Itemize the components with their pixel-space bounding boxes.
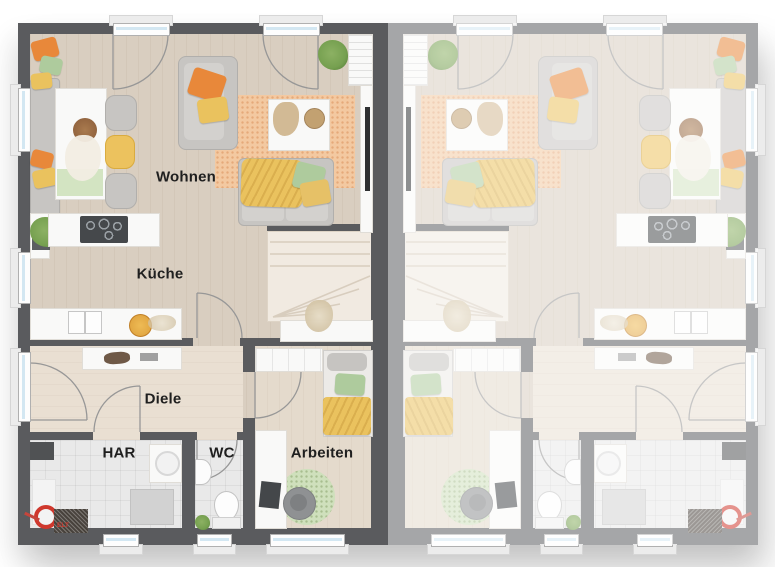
sink-basin — [85, 311, 102, 334]
unit-left: ELT Wohnen Küche Diele HAR WC Arbeiten — [18, 23, 388, 545]
room-label-utility: HAR — [102, 445, 135, 462]
cooktop — [80, 216, 128, 243]
plant — [195, 515, 210, 530]
storage-box — [130, 489, 174, 525]
unit-right — [388, 23, 758, 545]
dining-chair — [105, 95, 137, 131]
hall-sideboard — [82, 347, 182, 370]
bed-blanket — [323, 397, 371, 435]
dining-chair — [105, 173, 137, 209]
plant — [318, 40, 348, 70]
bed-pillow — [327, 353, 367, 371]
office-chair-seat — [290, 494, 307, 511]
pillow — [299, 179, 332, 208]
unit-fade-overlay — [388, 23, 758, 545]
dining-chair — [105, 135, 135, 169]
pillow — [30, 72, 53, 90]
desk — [255, 430, 287, 529]
room-label-office: Arbeiten — [291, 445, 353, 462]
terrace-door-window — [113, 23, 170, 36]
office-chair — [283, 487, 316, 520]
washer-door — [155, 451, 180, 476]
pillow — [334, 373, 365, 396]
room-label-living: Wohnen — [156, 169, 216, 186]
tv — [365, 107, 370, 191]
decor-tray — [304, 108, 325, 129]
house: ELT Wohnen Küche Diele HAR WC Arbeiten — [18, 23, 758, 545]
pillow — [196, 96, 229, 124]
window-utility — [103, 534, 139, 547]
window-wc — [197, 534, 232, 547]
laptop — [259, 481, 282, 509]
decor-item — [140, 353, 158, 361]
room-label-hall: Diele — [145, 391, 182, 408]
window-office — [270, 534, 345, 547]
floor-plan-canvas: ELT Wohnen Küche Diele HAR WC Arbeiten — [0, 0, 775, 567]
elt-distribution-box: ELT — [54, 509, 88, 533]
terrace-door-window — [263, 23, 320, 36]
window-kitchen — [18, 252, 31, 304]
utility-cabinet — [30, 442, 54, 460]
toilet-tank — [212, 517, 241, 529]
room-label-kitchen: Küche — [137, 266, 184, 283]
sink-basin — [68, 311, 85, 334]
entrance-door — [18, 352, 31, 422]
wardrobe — [255, 348, 323, 372]
elt-label: ELT — [57, 522, 69, 529]
room-label-wc: WC — [209, 445, 234, 462]
washing-machine — [149, 444, 182, 483]
wall-shelf — [348, 34, 373, 86]
